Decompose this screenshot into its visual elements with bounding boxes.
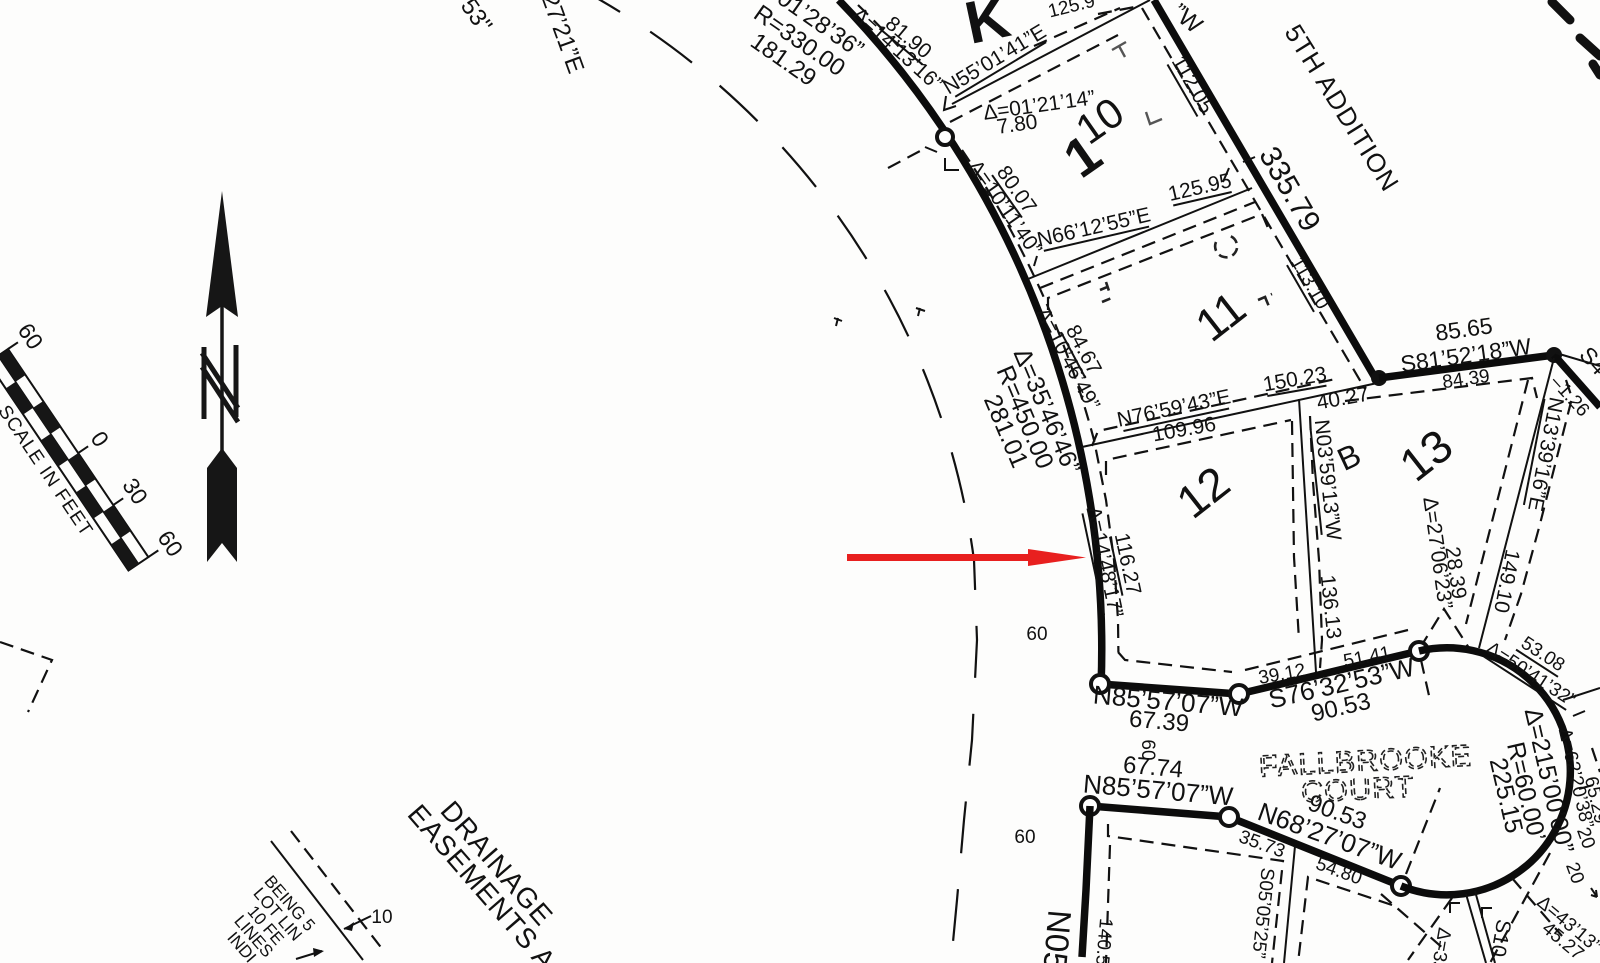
svg-text:60: 60 xyxy=(1026,624,1047,645)
svg-text:10: 10 xyxy=(371,907,392,928)
svg-text:N05: N05 xyxy=(1036,909,1078,963)
svg-text:140.5: 140.5 xyxy=(1091,917,1116,963)
svg-text:COURT: COURT xyxy=(1300,770,1415,809)
svg-text:60: 60 xyxy=(1014,827,1035,848)
svg-text:67.39: 67.39 xyxy=(1128,705,1190,737)
